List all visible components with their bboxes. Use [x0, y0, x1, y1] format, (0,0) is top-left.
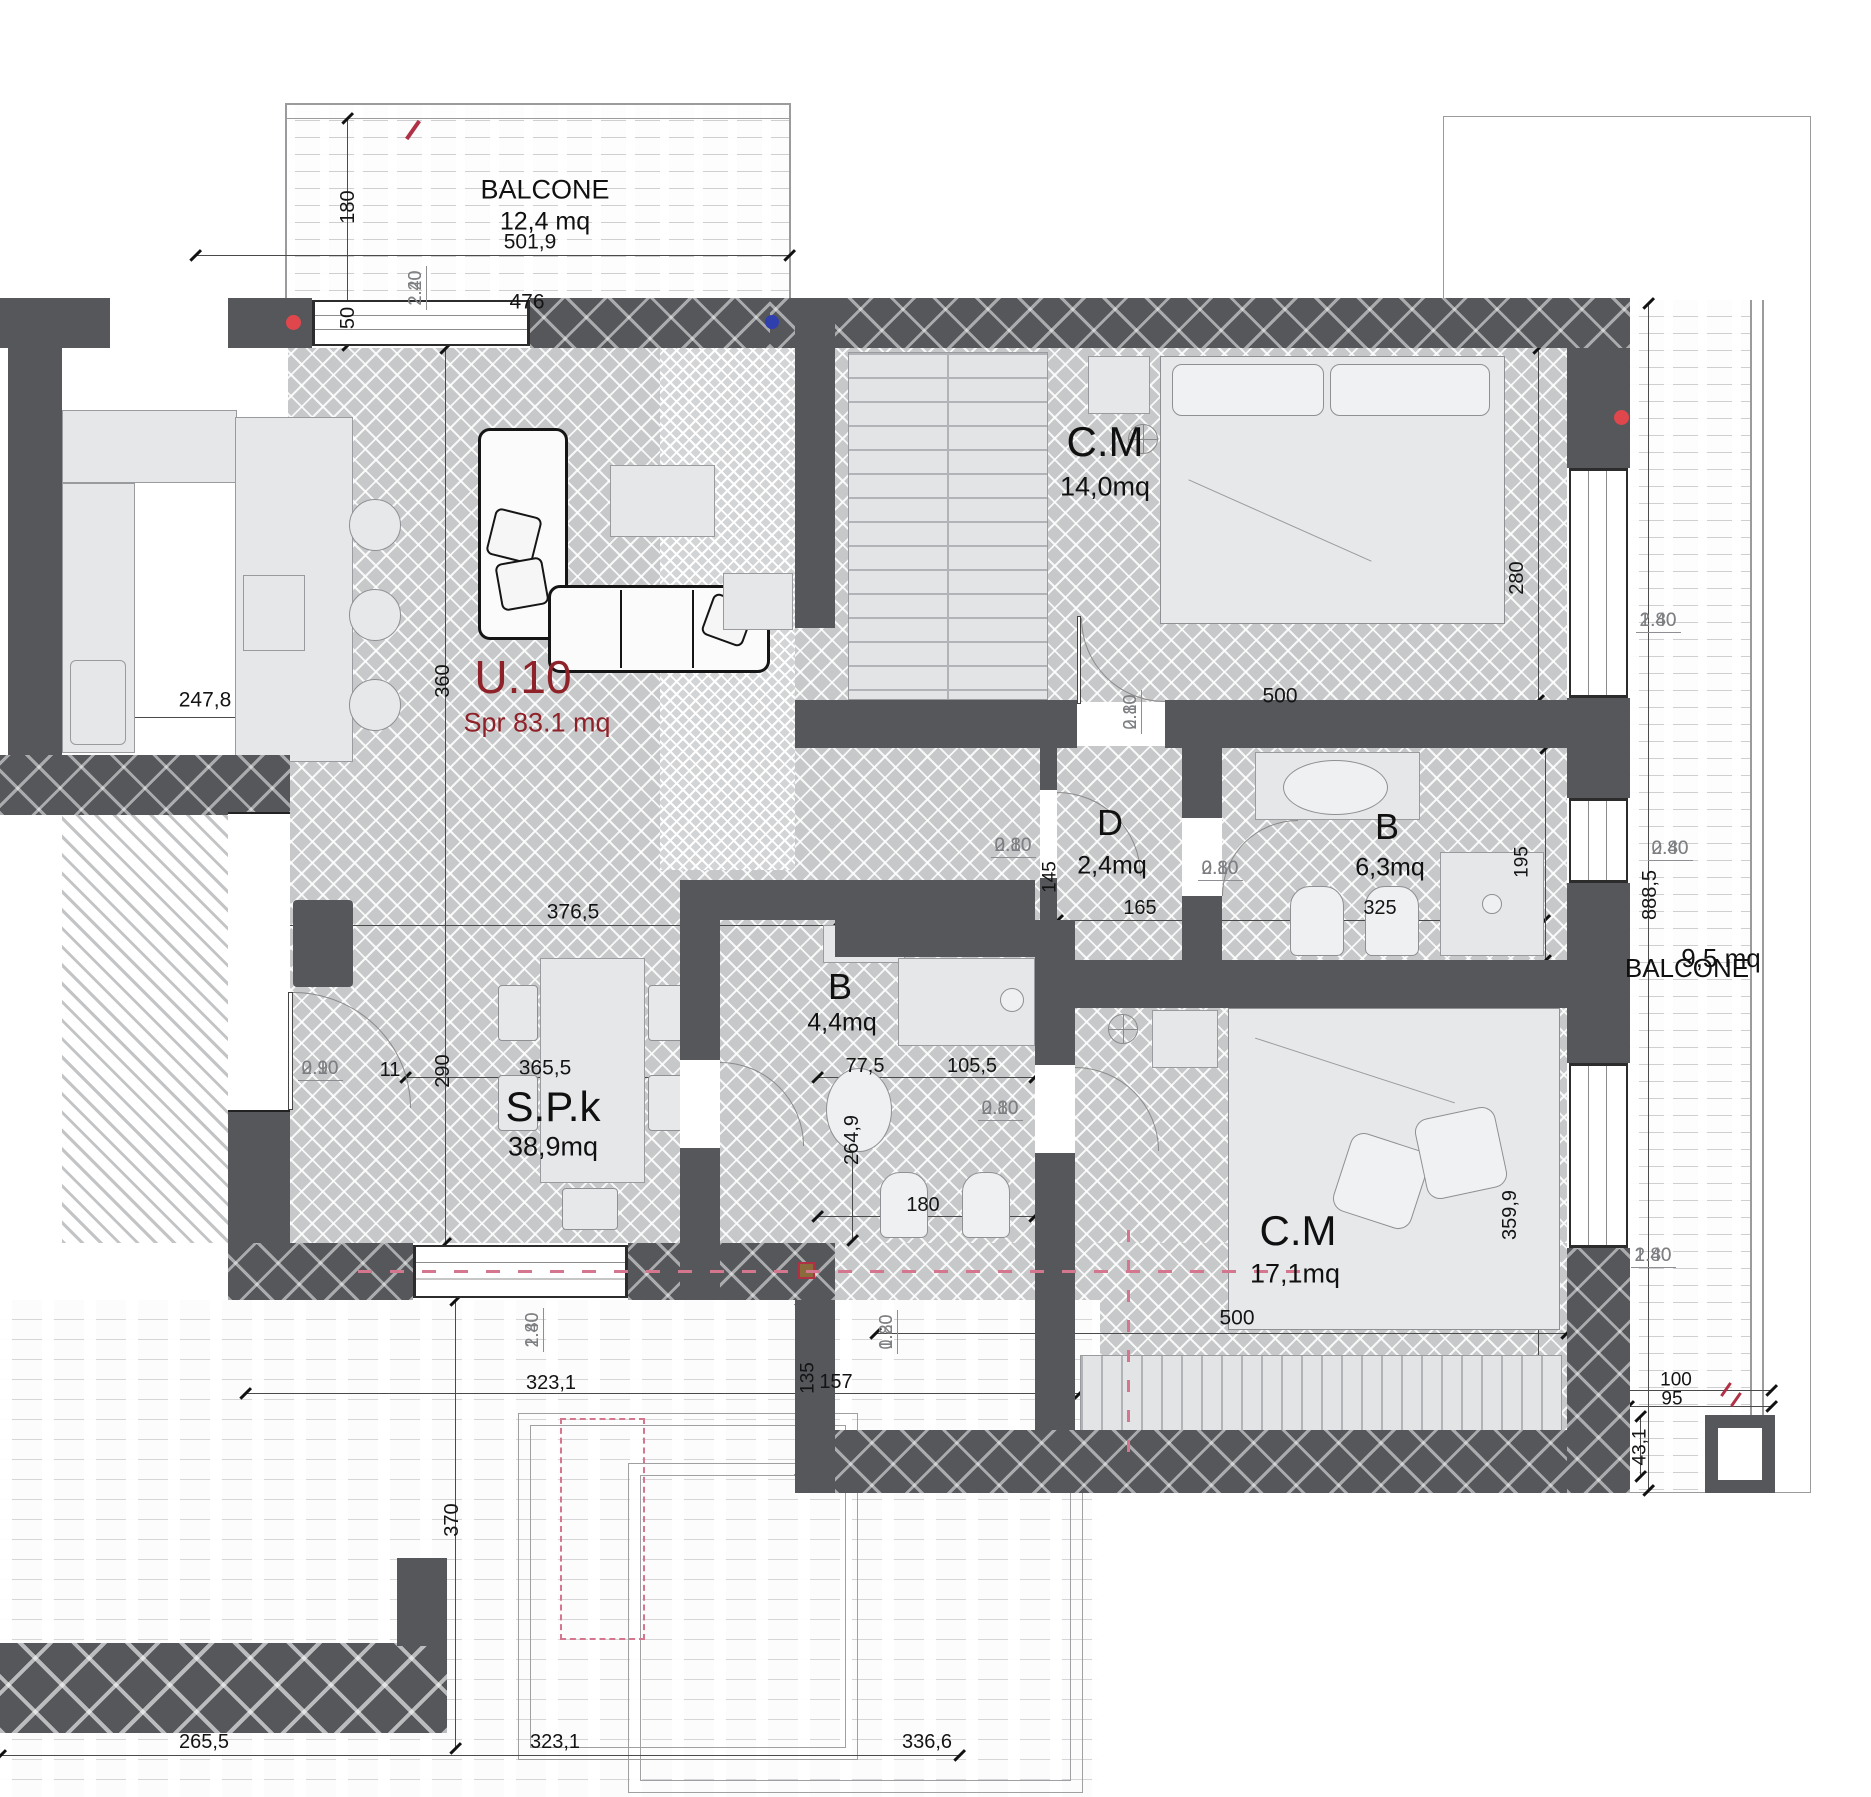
unit-id: U.10 — [474, 654, 571, 700]
floor-plan: BALCONE 12,4 mq U.10 Spr 83.1 mq C.M 14,… — [0, 0, 1871, 1797]
dim-balcony-depth: 180 — [338, 190, 358, 223]
balcony-right-rail1 — [1750, 300, 1752, 1493]
dim-bottom-middle: 323,1 — [530, 1732, 580, 1752]
dimline-terrace-w — [245, 1393, 1080, 1394]
wall-below-entry — [228, 1108, 290, 1243]
blue-dot — [765, 315, 779, 329]
door-leaf-hall-bedroomtop — [1077, 616, 1081, 704]
roof-line-right — [1810, 116, 1811, 1493]
wall-bedroombot-left-pier — [795, 1300, 835, 1493]
wall-bottomleft-band — [0, 1643, 447, 1733]
dim-bedroombot-w: 500 — [1219, 1308, 1254, 1329]
dimline-balcony-width — [195, 255, 790, 256]
room-area-living: 38,9mq — [508, 1134, 598, 1161]
nightstand-top — [1088, 356, 1150, 414]
dim-hall-w: 165 — [1123, 898, 1156, 918]
sofa-seat-div1 — [620, 590, 622, 668]
room-label-bathroom-main: B — [1375, 809, 1399, 845]
wardrobe-bedroom-bottom — [1080, 1355, 1562, 1431]
balcony-top-edge2 — [285, 118, 790, 119]
dim-balcony-offset: 50 — [338, 307, 358, 329]
sofa-cushion-2 — [494, 556, 550, 612]
room-label-bedroom-top: C.M — [1067, 421, 1144, 463]
dim-bathsmall-h: 264,9 — [842, 1115, 862, 1165]
room-label-hallway: D — [1097, 805, 1123, 841]
dim-col-offset-a: 100 — [1660, 1371, 1692, 1390]
wall-right-b — [1567, 698, 1630, 798]
wall-bedroomtop-bottom-r — [1165, 700, 1630, 748]
wall-entry-band — [0, 755, 290, 815]
dim-kitchen-width: 247,8 — [179, 690, 232, 711]
dimline-bottom-row — [0, 1755, 960, 1756]
dimline-living-v — [445, 348, 446, 1243]
position-marker-bottom — [1108, 1014, 1138, 1044]
bar-stool-3 — [349, 679, 401, 731]
dim-bedroombot-h: 359,9 — [1500, 1190, 1520, 1240]
dimline-bathmain-h — [1545, 748, 1546, 960]
pink-dashdot-vert — [1127, 1230, 1130, 1470]
dim-col-offset-b: 95 — [1661, 1390, 1682, 1409]
wall-bathsmall-left-b — [680, 1148, 720, 1300]
dim-terrace-w: 323,1 — [526, 1373, 576, 1393]
lower-balcony-outline-b2 — [640, 1475, 1071, 1781]
sink-main — [1283, 760, 1388, 815]
wall-bathsmall-block — [835, 880, 1035, 957]
wall-right-c — [1567, 883, 1630, 1063]
dim-bedroomtop-h: 280 — [1507, 561, 1527, 594]
coffee-table — [610, 465, 715, 537]
room-area-bathroom-small: 4,4mq — [807, 1011, 876, 1036]
room-area-bathroom-main: 6,3mq — [1355, 856, 1424, 881]
wall-bedroombot-left-b — [1035, 1153, 1075, 1430]
dim-bedroomtop-w: 500 — [1262, 686, 1297, 707]
roof-line-left — [1443, 116, 1444, 300]
kitchen-sink — [70, 660, 126, 745]
dim-bottom-right: 336,6 — [902, 1732, 952, 1752]
dim-entry-jamb: 11 — [380, 1060, 401, 1080]
wall-left-exterior — [8, 348, 62, 755]
dim-hall-h: 145 — [1041, 861, 1060, 893]
dim-bathsmall-w: 180 — [906, 1195, 939, 1215]
room-area-bedroom-top: 14,0mq — [1060, 474, 1150, 501]
sideboard — [293, 900, 353, 987]
dining-chair-5 — [562, 1188, 618, 1230]
dimline-col-100 — [1620, 1390, 1772, 1391]
room-label-bedroom-bottom: C.M — [1260, 1210, 1337, 1252]
kitchen-stove — [243, 575, 305, 651]
wall-bathsmall-left-a — [680, 880, 720, 1060]
dimline-bedroomtop-h — [1538, 348, 1539, 700]
room-area-bedroom-bottom: 17,1mq — [1250, 1261, 1340, 1288]
wardrobe-bedroom-top — [848, 352, 1048, 700]
room-area-hallway: 2,4mq — [1077, 854, 1146, 879]
wall-living-bedroom-sep — [795, 298, 835, 628]
washer-door — [1000, 988, 1024, 1012]
unit-area: Spr 83.1 mq — [463, 710, 610, 737]
red-dot-right — [1614, 410, 1629, 425]
wall-top-mid — [530, 298, 770, 348]
dim-living-upper-h: 360 — [433, 664, 453, 697]
bidet-small — [962, 1172, 1010, 1238]
wall-bedroomtop-bottom-l — [795, 700, 1077, 748]
pink-dash-rect — [560, 1418, 645, 1640]
wall-right-d — [1567, 1248, 1630, 1493]
kitchen-counter-top — [62, 410, 237, 483]
dim-living-upper-w: 376,5 — [547, 902, 600, 923]
dim-terrace-157: 157 — [819, 1372, 852, 1392]
wall-bedroombot-bottom — [835, 1430, 1630, 1493]
roof-line-top — [1443, 116, 1810, 117]
doorway-bathmain — [1182, 818, 1222, 896]
bed-top-pillow-2 — [1330, 364, 1490, 416]
nightstand-bottom — [1152, 1010, 1218, 1068]
dim-balconyright-len: 888,5 — [1640, 870, 1660, 920]
dim-balcony-window: 476 — [509, 292, 544, 313]
wall-hall-bath-sep-a — [1182, 748, 1222, 818]
dim-bathmain-h: 195 — [1513, 846, 1532, 878]
dining-chair-1 — [498, 985, 538, 1041]
dimline-bedroombot-w — [875, 1333, 1567, 1334]
dim-col-offset-c: 43,1 — [1631, 1429, 1650, 1466]
room-label-bathroom-small: B — [828, 969, 852, 1005]
doorway-bedroombot — [1035, 1065, 1075, 1153]
window-bedroom-bottom — [1569, 1063, 1628, 1248]
wall-hall-left-a — [1040, 748, 1057, 790]
room-label-living: S.P.k — [506, 1086, 601, 1128]
entry-doorway — [228, 812, 290, 1112]
wall-bedroombot-left-a — [1035, 920, 1075, 1065]
wall-bedroombot-top — [1075, 960, 1182, 1008]
wall-bottomleft-stub — [397, 1558, 447, 1646]
wall-bathsmall-top — [720, 880, 860, 920]
dim-bathsmall-right: 105,5 — [947, 1056, 997, 1076]
dim-terrace-h: 370 — [442, 1503, 462, 1536]
room-label-balcony-top: BALCONE — [480, 177, 609, 204]
door-balcony-right — [1569, 798, 1628, 883]
sofa-seat-div2 — [692, 590, 694, 668]
wc-main — [1290, 886, 1344, 956]
wall-bathmain-bottom — [1182, 960, 1630, 1008]
tv-unit — [723, 573, 793, 630]
wall-top-right — [770, 298, 1630, 348]
dim-balcony-width: 501,9 — [504, 232, 557, 253]
dim-living-lower-w: 365,5 — [519, 1058, 572, 1079]
bed-top-pillow-1 — [1172, 364, 1324, 416]
dimline-col-95 — [1628, 1406, 1772, 1407]
balcony-top-edge — [285, 103, 790, 105]
window-bedroom-top — [1569, 468, 1628, 698]
dim-bottom-left: 265,5 — [179, 1732, 229, 1752]
bed-bottom-pillow-2 — [1412, 1104, 1509, 1201]
red-dot-left — [286, 315, 301, 330]
dim-bathsmall-left: 77,5 — [846, 1056, 885, 1076]
dim-bathmain-w: 325 — [1363, 898, 1396, 918]
wall-right-a — [1567, 348, 1630, 468]
bar-stool-2 — [349, 589, 401, 641]
shower-drain — [1482, 894, 1502, 914]
doorway-bathsmall — [680, 1060, 720, 1148]
pink-dash-bottom-wall — [358, 1270, 1308, 1273]
balcony-right-rail2 — [1762, 300, 1764, 1493]
dim-living-lower-h: 290 — [433, 1054, 453, 1087]
bar-stool-1 — [349, 499, 401, 551]
column-bottom-right — [1705, 1415, 1775, 1493]
dim-terrace-135: 135 — [799, 1362, 818, 1394]
wall-neighbor-top — [0, 298, 110, 348]
stairwell-hatch — [62, 815, 228, 1243]
room-area-balcony-right: 9,5 mq — [1681, 945, 1761, 971]
